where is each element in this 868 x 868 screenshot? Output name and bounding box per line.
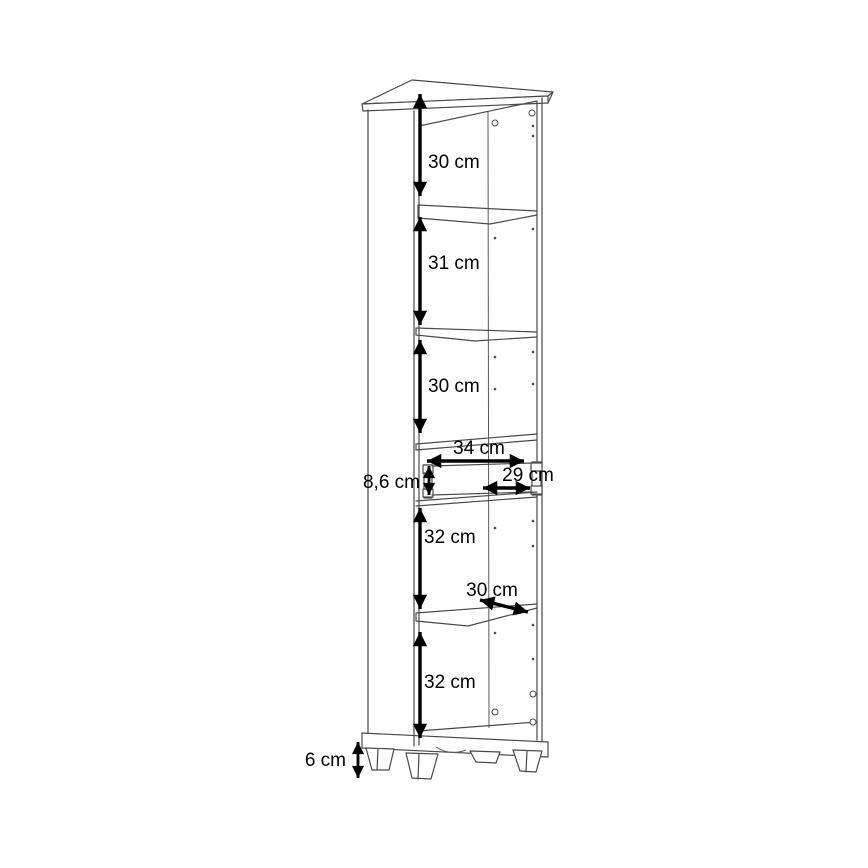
dimension-label: 30 cm	[428, 152, 480, 173]
interior-back-corner	[488, 112, 489, 728]
interior-floor-edge	[418, 722, 537, 731]
dimension-label: 31 cm	[428, 253, 480, 274]
dimension-label: 32 cm	[424, 527, 476, 548]
dimension-label: 30 cm	[428, 376, 480, 397]
shelf-2	[416, 328, 537, 341]
dimension-arrow	[480, 600, 528, 612]
dimension-label: 30 cm	[466, 580, 518, 601]
foot-front-right	[513, 750, 542, 772]
dimension-second-compartment: 31 cm	[420, 217, 480, 325]
dimension-label: 6 cm	[305, 750, 346, 771]
foot-back-left	[366, 748, 394, 770]
dimension-third-compartment: 30 cm	[420, 340, 480, 433]
cabinet-top-board	[362, 80, 553, 111]
dimension-drawer-inner-width: 29 cm	[483, 465, 554, 488]
shelf-pin-holes	[492, 110, 536, 725]
drawing-canvas: 30 cm 31 cm 30 cm 34 cm 8,6 cm 29 cm 32 …	[0, 0, 868, 868]
foot-back-right	[470, 751, 500, 763]
dimension-label: 32 cm	[424, 672, 476, 693]
dimension-label: 29 cm	[502, 465, 554, 486]
dimension-label: 34 cm	[453, 438, 505, 459]
dimension-label: 8,6 cm	[363, 472, 420, 493]
foot-front-left	[406, 753, 438, 779]
cabinet-dimension-drawing: 30 cm 31 cm 30 cm 34 cm 8,6 cm 29 cm 32 …	[0, 0, 868, 868]
dimension-bottom-compartment: 32 cm	[420, 632, 476, 738]
cabinet-body	[368, 98, 542, 746]
dimension-feet-height: 6 cm	[305, 742, 358, 778]
shelf-1	[418, 205, 537, 224]
dimension-top-compartment: 30 cm	[420, 94, 480, 196]
shelf-3	[416, 604, 537, 626]
